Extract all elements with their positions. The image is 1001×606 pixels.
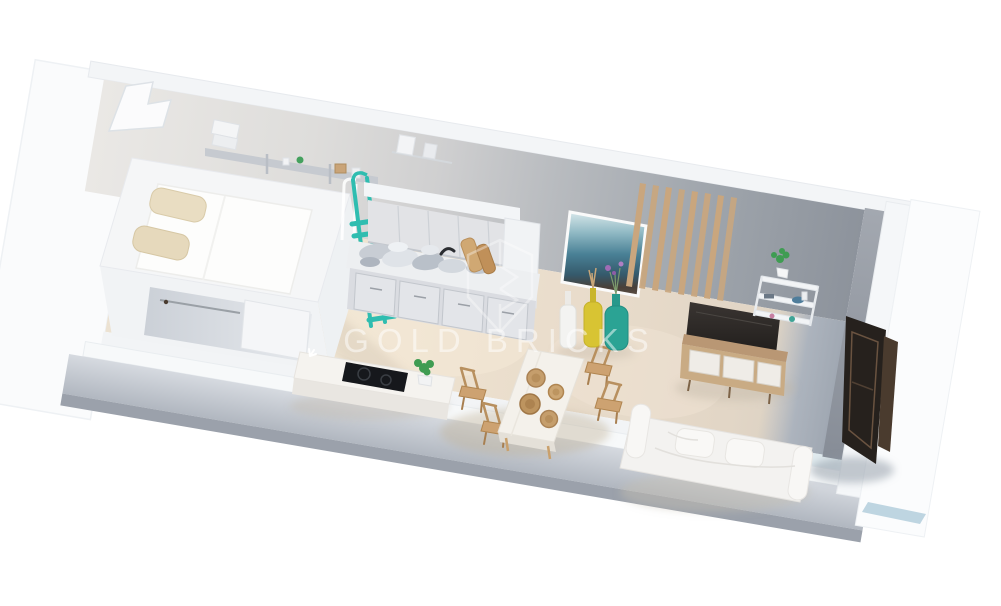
floor-plan-render: GOLD BRICKS <box>0 0 1001 606</box>
brand-watermark-text: GOLD BRICKS <box>343 322 657 359</box>
apartment-3d-scene: GOLD BRICKS <box>0 0 1001 606</box>
